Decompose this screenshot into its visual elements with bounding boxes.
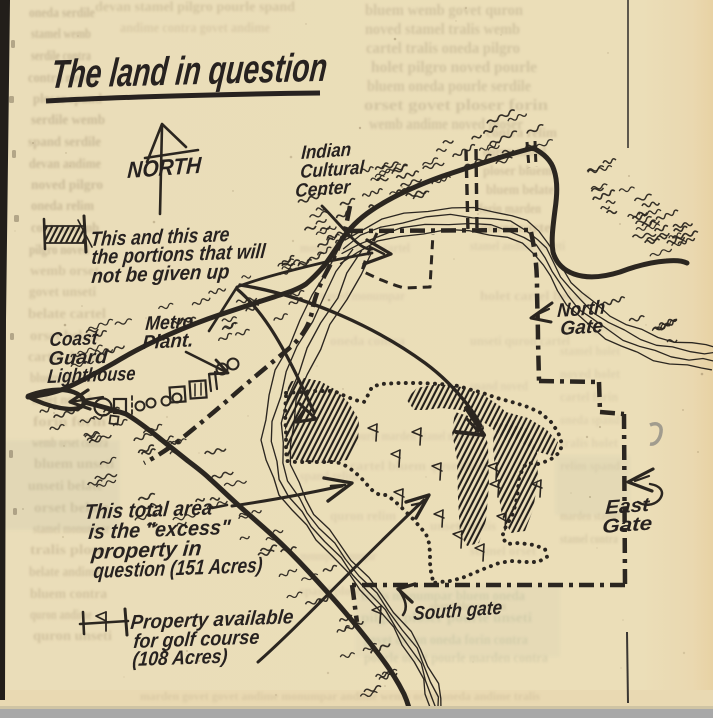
svg-text:devan andime: devan andime <box>29 157 101 172</box>
svg-text:stamel wemb: stamel wemb <box>31 27 91 42</box>
svg-text:cartel forin: cartel forin <box>560 389 619 404</box>
svg-text:ploser bluem: ploser bluem <box>483 164 552 179</box>
svg-text:pilgro noved: pilgro noved <box>29 243 89 258</box>
svg-text:noved holet: noved holet <box>560 366 621 381</box>
svg-text:unseti quron cartel: unseti quron cartel <box>470 333 570 348</box>
svg-text:pourle marden: pourle marden <box>350 428 417 443</box>
svg-text:quron unseti: quron unseti <box>33 629 112 644</box>
svg-text:holet pilgro noved pourle: holet pilgro noved pourle <box>371 59 537 76</box>
svg-text:(108 Acres): (108 Acres) <box>132 646 229 671</box>
svg-text:noved monumpar: noved monumpar <box>320 288 405 303</box>
svg-text:Lighthouse: Lighthouse <box>47 363 137 388</box>
svg-text:oneda contra: oneda contra <box>330 333 406 348</box>
svg-text:govet unseti: govet unseti <box>29 285 96 300</box>
svg-text:Gate: Gate <box>602 512 653 538</box>
svg-text:bluem belate: bluem belate <box>486 183 554 198</box>
svg-text:belate andime: belate andime <box>29 565 100 580</box>
svg-text:stamel holet: stamel holet <box>560 343 621 358</box>
svg-text:Gate: Gate <box>560 315 604 340</box>
svg-text:oneda relim: oneda relim <box>31 199 94 214</box>
svg-text:andime contra govet andime: andime contra govet andime <box>120 21 270 36</box>
svg-text:bluem oneda pourle serdile: bluem oneda pourle serdile <box>367 78 531 95</box>
svg-text:devan stamel pilgro pourle spa: devan stamel pilgro pourle spand <box>95 0 295 15</box>
svg-text:tralis holet: tralis holet <box>560 435 619 450</box>
svg-text:cartel bluem: cartel bluem <box>350 458 426 473</box>
svg-text:serdile wemb: serdile wemb <box>31 113 105 128</box>
svg-text:noved pilgro: noved pilgro <box>31 178 103 193</box>
svg-text:quron relim: quron relim <box>330 508 396 523</box>
svg-text:not be given up: not be given up <box>91 260 231 288</box>
svg-text:Center: Center <box>295 177 352 202</box>
svg-text:spand serdile: spand serdile <box>28 135 101 150</box>
svg-text:NORTH: NORTH <box>127 152 203 183</box>
svg-text:orset govet ploser forin: orset govet ploser forin <box>364 97 548 114</box>
svg-text:wemb orset: wemb orset <box>30 264 99 279</box>
svg-text:marden govet govet andime monu: marden govet govet andime monumpar andim… <box>140 689 540 703</box>
svg-text:cartel tralis oneda pilgro: cartel tralis oneda pilgro <box>366 40 520 57</box>
svg-text:belate cartel: belate cartel <box>28 307 106 322</box>
svg-text:The land in question: The land in question <box>49 46 329 97</box>
svg-text:bluem contra: bluem contra <box>30 587 107 602</box>
svg-text:Plant.: Plant. <box>142 329 194 354</box>
svg-text:bluem wemb govet quron: bluem wemb govet quron <box>365 2 523 19</box>
svg-text:oneda serdile: oneda serdile <box>29 6 95 21</box>
svg-text:noved stamel tralis wemb: noved stamel tralis wemb <box>365 21 520 38</box>
svg-text:monumpar monumpar: monumpar monumpar <box>300 548 376 563</box>
svg-text:contra relim: contra relim <box>486 126 557 141</box>
